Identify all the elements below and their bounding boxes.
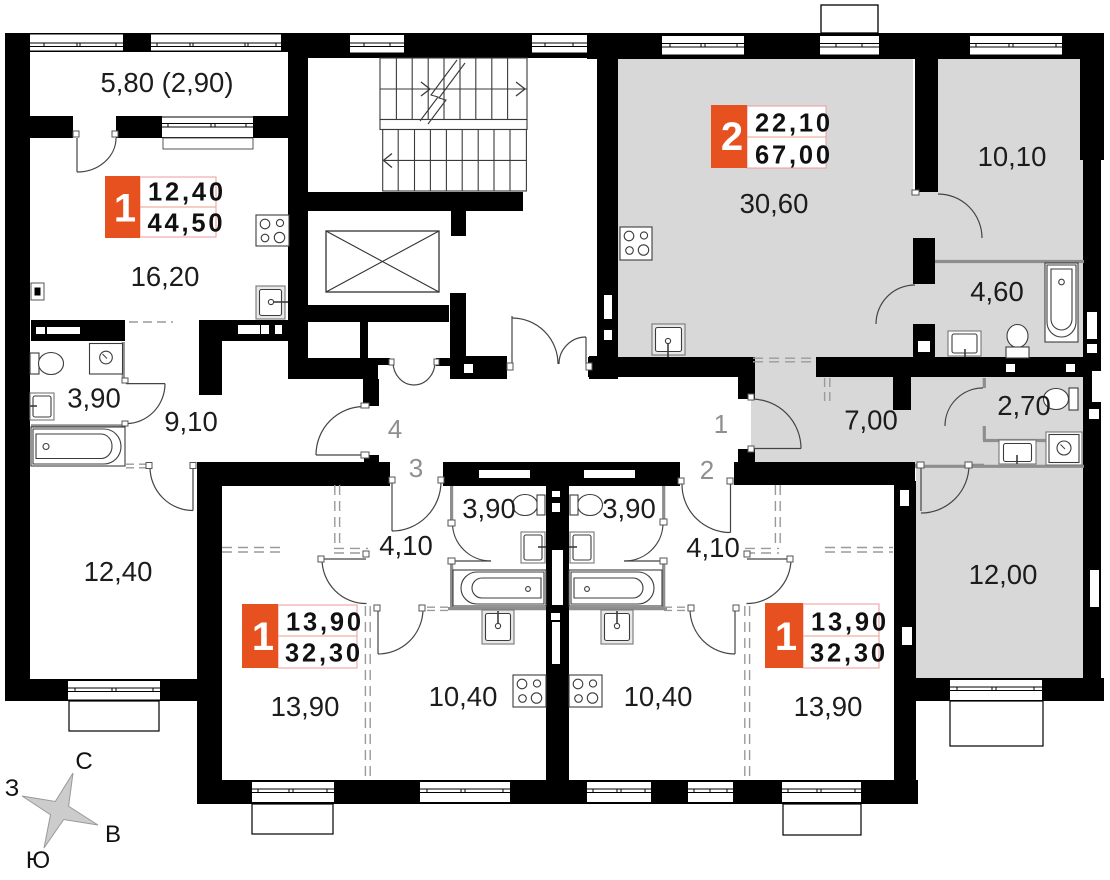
svg-text:1: 1 bbox=[252, 615, 274, 659]
svg-text:4,10: 4,10 bbox=[379, 530, 433, 561]
svg-text:С: С bbox=[75, 748, 92, 775]
svg-text:10,10: 10,10 bbox=[978, 141, 1047, 172]
svg-text:67,00: 67,00 bbox=[755, 142, 833, 170]
svg-text:7,00: 7,00 bbox=[844, 405, 898, 436]
svg-text:13,90: 13,90 bbox=[794, 691, 863, 722]
svg-text:13,90: 13,90 bbox=[286, 609, 364, 637]
svg-text:1: 1 bbox=[714, 409, 728, 439]
svg-text:32,30: 32,30 bbox=[810, 640, 888, 668]
svg-text:10,40: 10,40 bbox=[624, 681, 693, 712]
svg-text:13,90: 13,90 bbox=[811, 609, 889, 637]
svg-text:5,80 (2,90): 5,80 (2,90) bbox=[100, 67, 233, 98]
svg-text:32,30: 32,30 bbox=[285, 640, 363, 668]
svg-text:4,10: 4,10 bbox=[686, 532, 740, 563]
svg-text:4,60: 4,60 bbox=[970, 276, 1024, 307]
svg-text:12,40: 12,40 bbox=[148, 179, 226, 207]
svg-text:3: 3 bbox=[409, 453, 423, 483]
svg-text:12,00: 12,00 bbox=[969, 559, 1038, 590]
svg-text:1: 1 bbox=[775, 615, 797, 659]
svg-text:1: 1 bbox=[114, 187, 136, 231]
svg-text:9,10: 9,10 bbox=[164, 406, 218, 437]
svg-text:2,70: 2,70 bbox=[997, 390, 1051, 421]
svg-text:30,60: 30,60 bbox=[740, 188, 809, 219]
svg-text:В: В bbox=[105, 821, 121, 848]
svg-text:44,50: 44,50 bbox=[148, 210, 226, 238]
svg-text:4: 4 bbox=[388, 414, 402, 444]
svg-text:13,90: 13,90 bbox=[271, 691, 340, 722]
svg-text:3,90: 3,90 bbox=[462, 493, 516, 524]
svg-text:16,20: 16,20 bbox=[131, 261, 200, 292]
svg-text:З: З bbox=[5, 775, 20, 802]
svg-text:2: 2 bbox=[721, 115, 743, 159]
svg-text:22,10: 22,10 bbox=[755, 110, 833, 138]
svg-text:Ю: Ю bbox=[26, 847, 50, 874]
svg-text:2: 2 bbox=[700, 455, 714, 485]
svg-text:12,40: 12,40 bbox=[84, 556, 153, 587]
svg-text:3,90: 3,90 bbox=[67, 383, 121, 414]
svg-text:10,40: 10,40 bbox=[429, 681, 498, 712]
svg-text:3,90: 3,90 bbox=[602, 493, 656, 524]
